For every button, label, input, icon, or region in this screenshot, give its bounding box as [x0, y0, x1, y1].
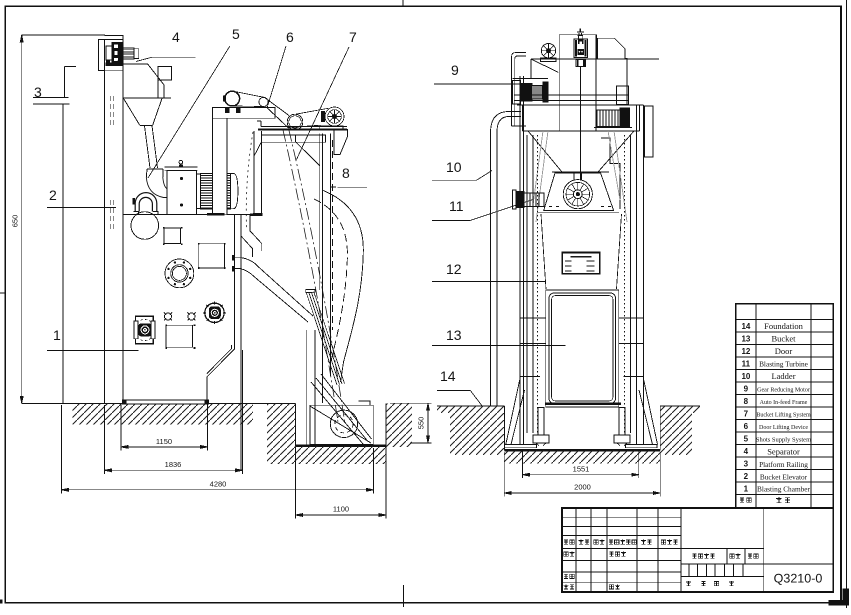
svg-text:Bucket Elevator: Bucket Elevator	[760, 472, 808, 481]
svg-text:13: 13	[446, 327, 462, 343]
svg-text:Shots Supply System: Shots Supply System	[756, 437, 811, 444]
svg-text:11: 11	[449, 198, 464, 214]
svg-text:Separator: Separator	[767, 446, 800, 456]
svg-text:Foundation: Foundation	[764, 321, 803, 331]
svg-text:Bucket Lifting System: Bucket Lifting System	[756, 412, 811, 419]
svg-text:4: 4	[172, 29, 180, 45]
svg-text:3: 3	[34, 84, 42, 100]
svg-text:Ladder: Ladder	[771, 371, 795, 381]
svg-text:Blasting Chamber: Blasting Chamber	[757, 485, 810, 494]
svg-text:9: 9	[744, 385, 749, 394]
svg-text:1551: 1551	[573, 465, 590, 474]
svg-text:1150: 1150	[156, 437, 172, 446]
svg-text:5: 5	[744, 435, 749, 444]
svg-text:4: 4	[744, 447, 749, 456]
svg-text:550: 550	[417, 417, 426, 430]
svg-text:5: 5	[232, 26, 240, 42]
svg-text:Gear Reducing Motor: Gear Reducing Motor	[757, 388, 810, 394]
svg-text:10: 10	[741, 372, 750, 381]
svg-text:1: 1	[53, 327, 61, 343]
svg-text:1836: 1836	[165, 460, 182, 469]
svg-text:12: 12	[741, 347, 750, 356]
svg-text:14: 14	[440, 368, 456, 384]
svg-text:Door Lifting Device: Door Lifting Device	[759, 424, 808, 431]
svg-text:2000: 2000	[574, 483, 591, 492]
svg-text:9: 9	[451, 62, 459, 78]
svg-text:4280: 4280	[210, 480, 227, 489]
svg-text:12: 12	[446, 261, 462, 277]
svg-text:8: 8	[342, 165, 350, 181]
svg-text:1: 1	[744, 485, 749, 494]
svg-text:Blasting Turbine: Blasting Turbine	[759, 360, 808, 369]
svg-text:6: 6	[744, 422, 749, 431]
svg-text:13: 13	[741, 334, 750, 343]
svg-text:2: 2	[49, 187, 57, 203]
svg-text:Q3210-0: Q3210-0	[774, 571, 823, 585]
svg-text:1100: 1100	[333, 505, 349, 514]
svg-text:6: 6	[286, 29, 294, 45]
svg-text:3: 3	[744, 460, 749, 469]
svg-text:10: 10	[446, 159, 462, 175]
svg-text:2: 2	[744, 472, 749, 481]
svg-text:7: 7	[349, 29, 357, 45]
svg-text:Door: Door	[775, 346, 793, 356]
svg-text:Bucket: Bucket	[771, 334, 796, 344]
svg-text:8: 8	[744, 397, 749, 406]
svg-text:650: 650	[11, 215, 20, 228]
svg-text:Platform Railing: Platform Railing	[759, 460, 808, 469]
svg-text:11: 11	[742, 359, 751, 368]
svg-text:7: 7	[744, 410, 749, 419]
svg-text:14: 14	[741, 322, 750, 331]
svg-text:Auto In-feed Frame: Auto In-feed Frame	[760, 399, 808, 406]
